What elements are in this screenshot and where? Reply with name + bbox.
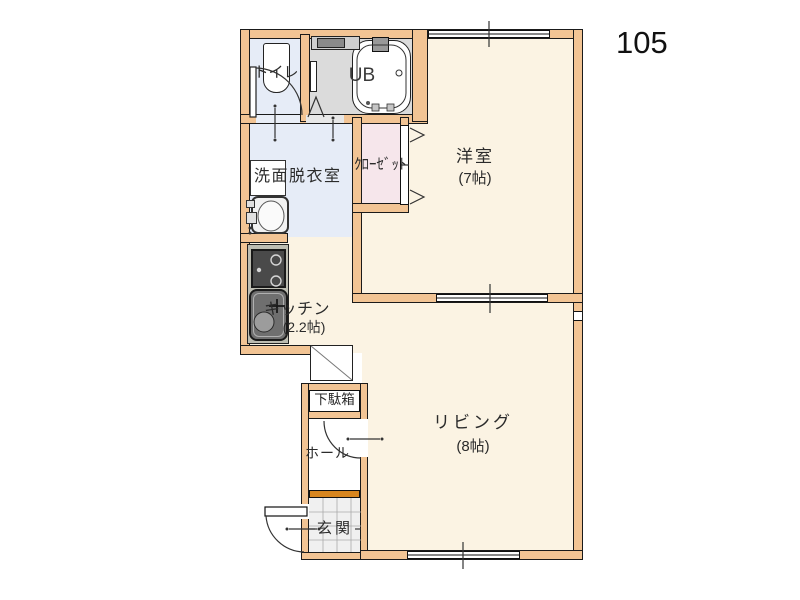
refrigerator-space — [310, 345, 353, 381]
bath-vanity-sink — [317, 38, 345, 48]
washbasin-cabinet-a — [246, 200, 255, 208]
bath-mirror-panel — [310, 61, 317, 92]
room-size-living: (8帖) — [425, 438, 521, 455]
room-size-western: (7帖) — [429, 170, 521, 187]
room-label-living: リビング — [425, 413, 521, 433]
wall-joint-east — [574, 311, 582, 321]
wall-entry-block-west — [301, 383, 309, 560]
western-room-nook-floor — [356, 205, 420, 300]
room-label-toilet: トイレ — [249, 64, 303, 81]
unit-number: 105 — [616, 25, 668, 61]
bath-doorway — [306, 115, 344, 123]
washbasin-cabinet-b — [246, 212, 257, 224]
toilet-doorway — [256, 115, 300, 123]
wall-entry-block-east — [360, 383, 368, 560]
entrance-doorway — [301, 504, 309, 519]
wall-washroom-south — [240, 233, 288, 243]
stove — [251, 249, 286, 288]
room-label-hall: ホール — [305, 445, 350, 461]
sliding-door-western-living — [436, 294, 548, 302]
room-label-entrance: 玄関 — [317, 520, 353, 537]
room-label-washroom: 洗面脱衣室 — [254, 168, 342, 186]
entrance-step — [309, 490, 360, 498]
window-living-south — [407, 551, 520, 559]
room-size-kitchen: (2.2帖) — [266, 319, 342, 335]
floorplan-canvas: トイレ UB 洗面脱衣室 ｸﾛｰｾﾞｯﾄ 洋室 (7帖) キッチン (2.2帖)… — [0, 0, 800, 600]
bathtub-faucet — [372, 37, 389, 52]
wall-bath-western-divider — [412, 29, 428, 122]
room-label-shoe-cabinet: 下駄箱 — [309, 392, 360, 408]
room-label-bath: UB — [344, 65, 380, 87]
room-label-kitchen: キッチン — [264, 301, 330, 319]
hall-doorway — [360, 419, 368, 457]
room-label-closet: ｸﾛｰｾﾞｯﾄ — [354, 156, 407, 173]
room-label-western: 洋室 — [429, 147, 521, 167]
wall-kitchen-south — [240, 345, 312, 355]
window-western-north — [428, 30, 550, 38]
